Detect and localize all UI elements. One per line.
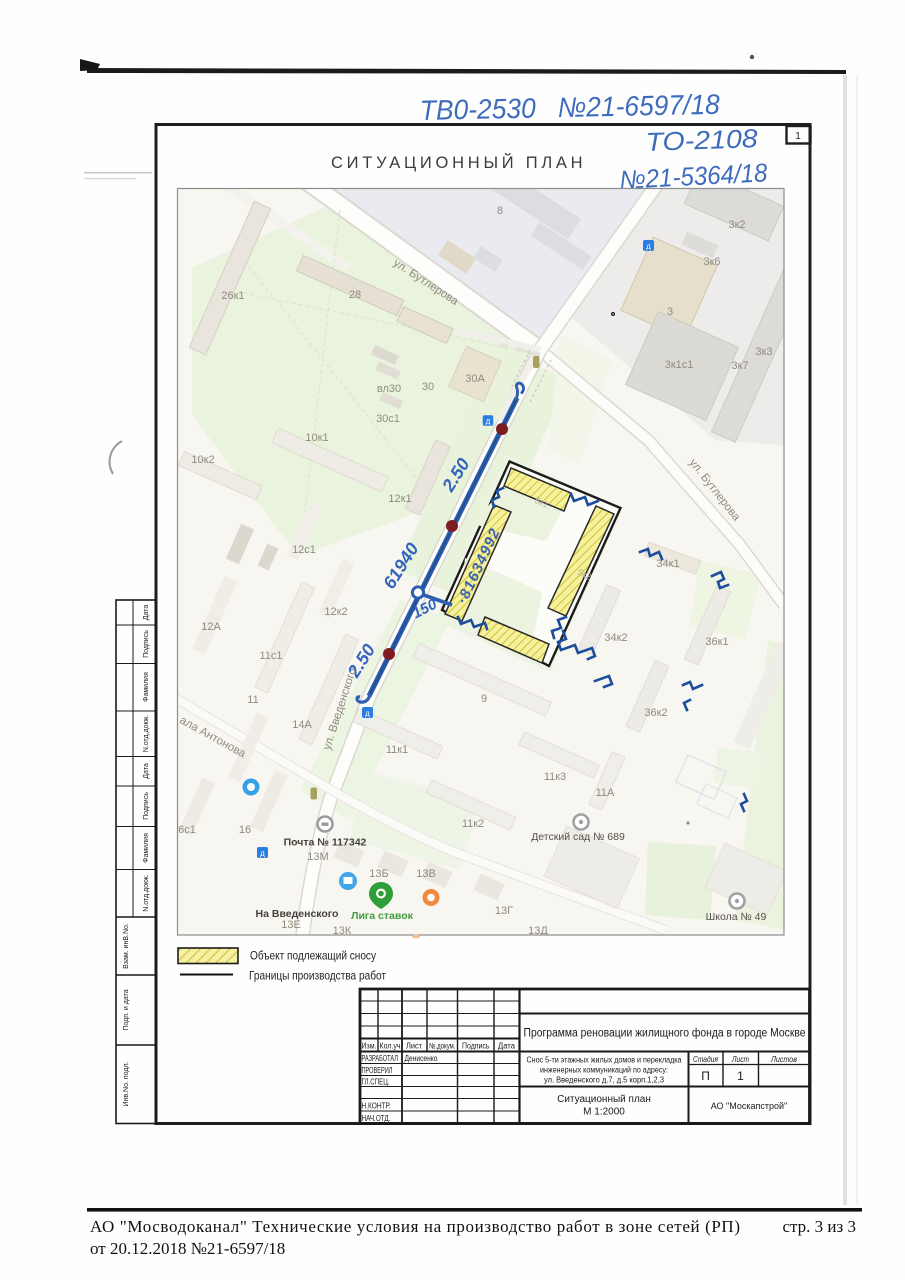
svg-text:14А: 14А xyxy=(292,719,312,731)
svg-text:3к7: 3к7 xyxy=(731,360,748,372)
svg-text:N.отд.докж.: N.отд.докж. xyxy=(143,715,150,752)
svg-text:Лист: Лист xyxy=(731,1054,749,1064)
svg-text:Почта № 117342: Почта № 117342 xyxy=(284,837,367,849)
svg-text:12А: 12А xyxy=(201,621,221,633)
svg-text:стр. 3 из 3: стр. 3 из 3 xyxy=(783,1217,857,1236)
svg-text:Лист: Лист xyxy=(406,1042,422,1051)
svg-text:Дата: Дата xyxy=(143,605,150,621)
svg-text:Снос 5-ти этажных жилых домов: Снос 5-ти этажных жилых домов и переклад… xyxy=(527,1056,683,1065)
svg-text:вл30: вл30 xyxy=(377,383,401,395)
svg-text:28: 28 xyxy=(349,289,361,301)
svg-text:М 1:2000: М 1:2000 xyxy=(583,1107,625,1118)
svg-text:10к1: 10к1 xyxy=(305,432,328,444)
svg-text:НАЧ.ОТД.: НАЧ.ОТД. xyxy=(362,1113,391,1123)
svg-text:инженерных коммуникаций по адр: инженерных коммуникаций по адресу: xyxy=(540,1066,668,1075)
svg-text:34к2: 34к2 xyxy=(604,632,627,644)
svg-text:36к2: 36к2 xyxy=(644,707,667,719)
svg-text:13В: 13В xyxy=(416,868,436,880)
svg-text:Денисенко: Денисенко xyxy=(405,1053,438,1063)
svg-text:1: 1 xyxy=(795,131,801,142)
svg-text:11А: 11А xyxy=(596,787,615,799)
svg-text:ТО-2108: ТО-2108 xyxy=(645,123,759,157)
svg-text:ул. Введенского д.7, д.5 корп.: ул. Введенского д.7, д.5 корп.1,2,3 xyxy=(544,1076,664,1085)
svg-text:Подпись: Подпись xyxy=(143,630,150,658)
svg-text:3к1с1: 3к1с1 xyxy=(665,359,694,371)
svg-text:12с1: 12с1 xyxy=(292,544,316,556)
svg-text:Инв.Nо. подл.: Инв.Nо. подл. xyxy=(123,1061,130,1106)
svg-text:Фамилия: Фамилия xyxy=(143,833,150,863)
svg-text:3к6: 3к6 xyxy=(703,256,720,268)
svg-text:Лига ставок: Лига ставок xyxy=(351,910,414,922)
svg-text:12к2: 12к2 xyxy=(324,606,347,618)
svg-text:д: д xyxy=(365,709,370,718)
svg-text:11к1: 11к1 xyxy=(386,744,408,756)
svg-text:ТВ0-2530 №21-6597/18: ТВ0-2530 №21-6597/18 xyxy=(419,89,720,126)
svg-text:13Б: 13Б xyxy=(369,868,388,880)
svg-text:от 20.12.2018 №21-6597/18: от 20.12.2018 №21-6597/18 xyxy=(90,1239,285,1258)
svg-text:30: 30 xyxy=(422,381,434,393)
svg-text:11к3: 11к3 xyxy=(544,771,566,783)
svg-text:16: 16 xyxy=(239,824,251,836)
svg-text:АО "Мосводоканал" Технические: АО "Мосводоканал" Технические условия на… xyxy=(90,1217,740,1236)
svg-text:Стадия: Стадия xyxy=(693,1054,718,1064)
svg-text:3: 3 xyxy=(667,306,673,318)
svg-text:Фамилия: Фамилия xyxy=(143,672,150,702)
svg-text:Ситуационный план: Ситуационный план xyxy=(557,1094,651,1105)
svg-text:30с1: 30с1 xyxy=(376,413,400,425)
svg-text:Школа № 49: Школа № 49 xyxy=(706,911,767,923)
svg-text:Детский сад № 689: Детский сад № 689 xyxy=(531,831,625,843)
svg-text:Границы производства работ: Границы производства работ xyxy=(249,969,386,983)
svg-text:АО "Москапстрой": АО "Москапстрой" xyxy=(711,1101,787,1111)
svg-text:3к3: 3к3 xyxy=(755,346,772,358)
svg-text:Подпись: Подпись xyxy=(143,792,150,820)
svg-text:11к2: 11к2 xyxy=(462,818,484,830)
svg-text:6с1: 6с1 xyxy=(178,824,196,836)
svg-text:36к1: 36к1 xyxy=(705,636,728,648)
svg-text:Программа реновации жилищного: Программа реновации жилищного фонда в го… xyxy=(524,1028,806,1040)
svg-text:13Г: 13Г xyxy=(495,905,513,917)
svg-text:12к1: 12к1 xyxy=(388,493,411,505)
svg-text:26к1: 26к1 xyxy=(221,290,244,302)
svg-text:1: 1 xyxy=(737,1069,744,1083)
svg-text:Объект подлежащий сносу: Объект подлежащий сносу xyxy=(250,949,376,963)
svg-text:Дата: Дата xyxy=(498,1042,516,1051)
svg-text:Кол.уч: Кол.уч xyxy=(380,1042,401,1051)
svg-text:30А: 30А xyxy=(465,373,485,385)
svg-text:РАЗРАБОТАЛ: РАЗРАБОТАЛ xyxy=(362,1053,399,1063)
svg-text:13Е: 13Е xyxy=(281,919,301,931)
svg-text:СИТУАЦИОННЫЙ ПЛАН: СИТУАЦИОННЫЙ ПЛАН xyxy=(331,153,586,172)
svg-text:Взам. инВ.Nо.: Взам. инВ.Nо. xyxy=(123,923,130,969)
svg-text:N.отд.докж.: N.отд.докж. xyxy=(143,874,150,911)
svg-text:ГЛ.СПЕЦ.: ГЛ.СПЕЦ. xyxy=(362,1077,390,1087)
svg-text:3к2: 3к2 xyxy=(728,219,745,231)
svg-text:На Введенского: На Введенского xyxy=(256,908,339,920)
svg-text:11с1: 11с1 xyxy=(259,650,282,662)
svg-text:Дата: Дата xyxy=(143,763,150,779)
svg-text:34к1: 34к1 xyxy=(656,558,679,570)
svg-text:д: д xyxy=(486,417,491,426)
svg-text:Листов: Листов xyxy=(770,1054,797,1064)
svg-text:д: д xyxy=(260,849,265,858)
svg-text:Н.КОНТР.: Н.КОНТР. xyxy=(362,1101,391,1111)
svg-text:9: 9 xyxy=(481,693,487,705)
svg-text:11: 11 xyxy=(247,694,258,706)
svg-text:№.докум.: №.докум. xyxy=(429,1042,456,1051)
svg-text:13М: 13М xyxy=(307,851,328,863)
svg-text:П: П xyxy=(701,1069,710,1083)
svg-text:д: д xyxy=(646,242,651,251)
svg-text:10к2: 10к2 xyxy=(191,454,214,466)
svg-text:Изм.: Изм. xyxy=(362,1042,377,1051)
svg-text:Подпись: Подпись xyxy=(462,1042,490,1051)
svg-text:Подп. и дата: Подп. и дата xyxy=(123,989,130,1030)
svg-text:8: 8 xyxy=(497,205,503,217)
svg-text:ПРОВЕРИЛ: ПРОВЕРИЛ xyxy=(362,1065,393,1075)
